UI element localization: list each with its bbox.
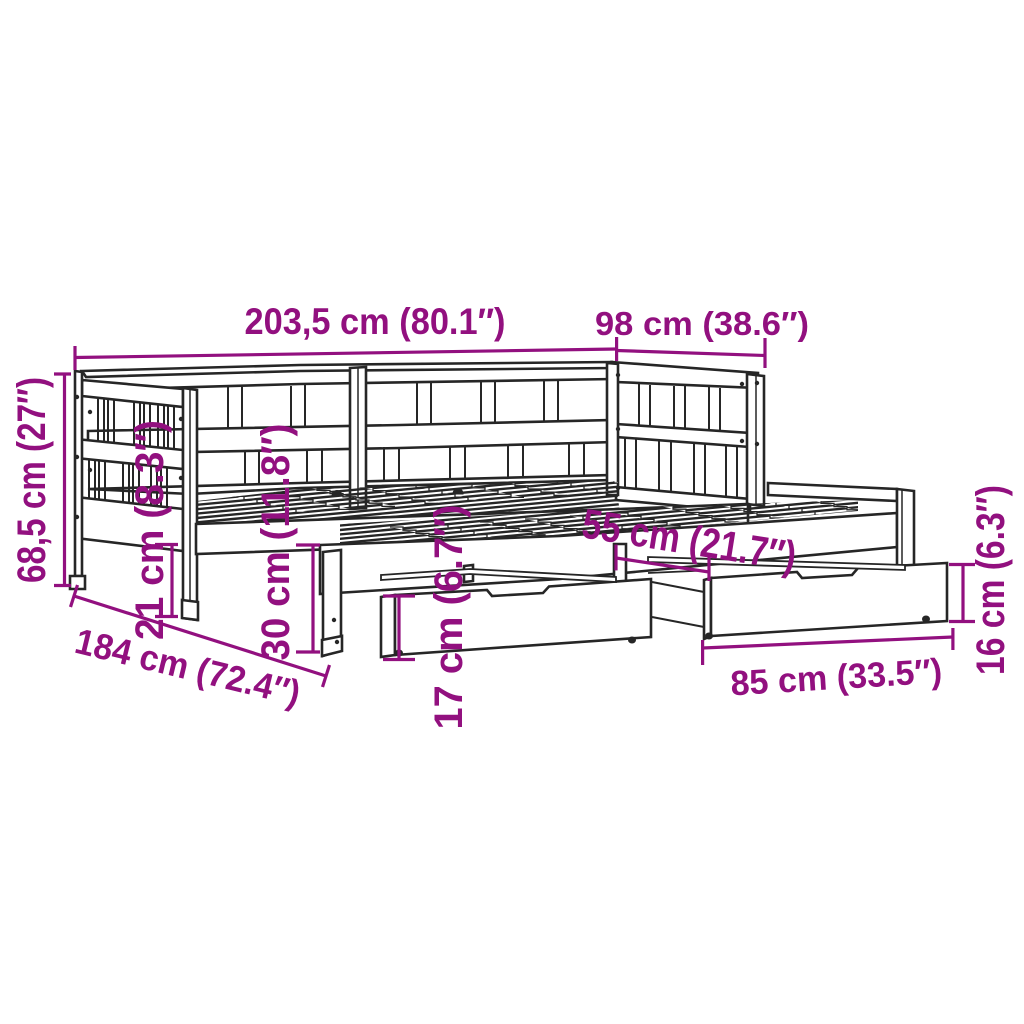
svg-text:203,5 cm (80.1″): 203,5 cm (80.1″) xyxy=(245,301,506,342)
svg-text:68,5 cm (27″): 68,5 cm (27″) xyxy=(10,377,54,583)
svg-text:85 cm (33.5″): 85 cm (33.5″) xyxy=(729,652,943,704)
svg-text:17 cm (6.7″): 17 cm (6.7″) xyxy=(427,505,471,730)
svg-text:16 cm (6.3″): 16 cm (6.3″) xyxy=(969,485,1013,675)
svg-text:98 cm (38.6″): 98 cm (38.6″) xyxy=(595,305,809,342)
svg-text:30 cm (11.8″): 30 cm (11.8″) xyxy=(254,424,298,661)
svg-text:21 cm (8.3″): 21 cm (8.3″) xyxy=(128,420,172,640)
